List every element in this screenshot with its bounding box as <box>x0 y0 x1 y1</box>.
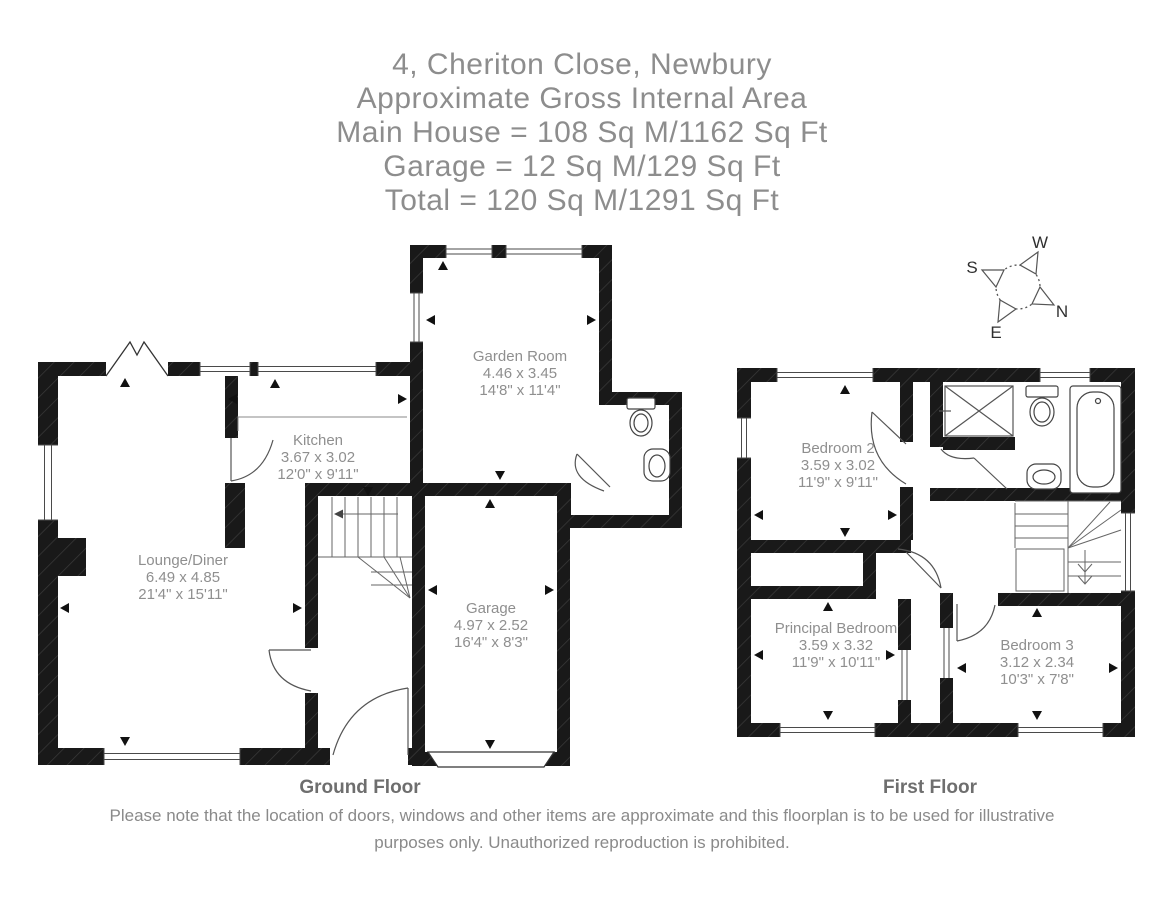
room-label-lounge-diner: Lounge/Diner 6.49 x 4.85 21'4" x 15'11" <box>93 552 273 603</box>
compass-label-n: N <box>1056 302 1068 321</box>
bathtub-fixture <box>1070 386 1121 493</box>
room-name: Bedroom 2 <box>758 440 918 457</box>
room-name: Principal Bedroom <box>736 620 936 637</box>
room-label-kitchen: Kitchen 3.67 x 3.02 12'0" x 9'11" <box>238 432 398 483</box>
ground-floor-label: Ground Floor <box>250 777 470 799</box>
wc-sink-fixture <box>644 449 670 481</box>
room-imperial-dims: 14'8" x 11'4" <box>430 382 610 399</box>
shower-fixture <box>939 386 1013 436</box>
room-metric-dims: 3.12 x 2.34 <box>957 654 1117 671</box>
compass-rose: W S N E <box>966 233 1068 342</box>
floorplan-drawing: W S N E <box>0 0 1164 900</box>
window <box>258 362 376 376</box>
first-floor-label: First Floor <box>820 777 1040 799</box>
disclaimer-text: Please note that the location of doors, … <box>77 802 1087 856</box>
stair-direction-arrow <box>334 510 343 519</box>
room-imperial-dims: 16'4" x 8'3" <box>411 634 571 651</box>
room-metric-dims: 3.59 x 3.02 <box>758 457 918 474</box>
sink-fixture <box>1027 464 1061 489</box>
room-name: Lounge/Diner <box>93 552 273 569</box>
ground-walls <box>38 245 682 766</box>
room-metric-dims: 4.97 x 2.52 <box>411 617 571 634</box>
garage-door <box>428 752 554 767</box>
room-imperial-dims: 21'4" x 15'11" <box>93 586 273 603</box>
ground-dimension-arrows <box>60 261 596 749</box>
room-imperial-dims: 11'9" x 9'11" <box>758 474 918 491</box>
wc-toilet-fixture <box>627 398 655 436</box>
window <box>780 723 875 737</box>
room-metric-dims: 4.46 x 3.45 <box>430 365 610 382</box>
room-name: Garden Room <box>430 348 610 365</box>
compass-label-s: S <box>966 258 977 277</box>
window <box>506 245 582 258</box>
floorplan-canvas: 4, Cheriton Close, Newbury Approximate G… <box>0 0 1164 900</box>
room-name: Kitchen <box>238 432 398 449</box>
door-arc <box>957 604 995 641</box>
window <box>1121 513 1135 591</box>
window <box>1018 723 1103 737</box>
window <box>446 245 492 258</box>
room-metric-dims: 3.67 x 3.02 <box>238 449 398 466</box>
room-label-bedroom-3: Bedroom 3 3.12 x 2.34 10'3" x 7'8" <box>957 637 1117 688</box>
window <box>940 628 953 678</box>
first-staircase <box>1015 501 1121 593</box>
compass-pointer-n <box>1032 287 1054 305</box>
room-name: Bedroom 3 <box>957 637 1117 654</box>
door-arc <box>333 688 408 755</box>
room-label-principal-bedroom: Principal Bedroom 3.59 x 3.32 11'9" x 10… <box>736 620 936 671</box>
door-arc <box>898 549 941 588</box>
window <box>38 445 58 520</box>
room-metric-dims: 6.49 x 4.85 <box>93 569 273 586</box>
window <box>104 748 240 765</box>
compass-pointer-e <box>998 300 1016 322</box>
door-arc <box>575 454 610 491</box>
window <box>410 293 423 342</box>
window <box>777 368 873 382</box>
compass-pointer-s <box>982 270 1004 287</box>
door-arc <box>269 650 311 691</box>
door-arc <box>941 449 1007 489</box>
room-label-garage: Garage 4.97 x 2.52 16'4" x 8'3" <box>411 600 571 651</box>
window <box>1040 368 1090 382</box>
room-label-garden-room: Garden Room 4.46 x 3.45 14'8" x 11'4" <box>430 348 610 399</box>
window <box>200 362 250 376</box>
window <box>737 418 751 458</box>
room-name: Garage <box>411 600 571 617</box>
ground-staircase <box>318 497 412 598</box>
room-imperial-dims: 12'0" x 9'11" <box>238 466 398 483</box>
toilet-fixture <box>1026 386 1058 426</box>
room-label-bedroom-2: Bedroom 2 3.59 x 3.02 11'9" x 9'11" <box>758 440 918 491</box>
compass-label-e: E <box>990 323 1001 342</box>
kitchen-worktop-line <box>238 417 407 431</box>
room-metric-dims: 3.59 x 3.32 <box>736 637 936 654</box>
first-door-gaps <box>953 593 998 606</box>
ground-floor-plan <box>38 245 682 767</box>
room-imperial-dims: 11'9" x 10'11" <box>736 654 936 671</box>
compass-label-w: W <box>1032 233 1048 252</box>
compass-pointer-w <box>1020 252 1038 274</box>
room-imperial-dims: 10'3" x 7'8" <box>957 671 1117 688</box>
